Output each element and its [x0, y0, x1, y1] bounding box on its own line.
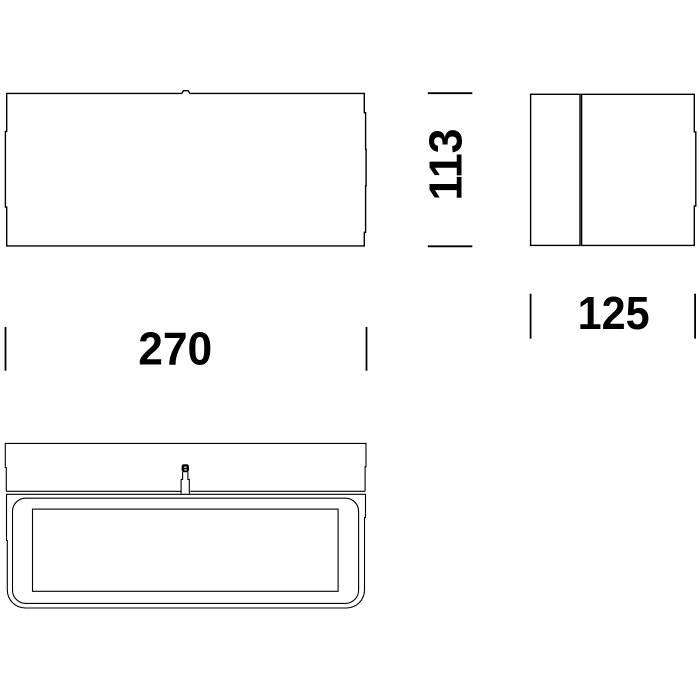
svg-text:113: 113: [420, 129, 472, 201]
svg-text:270: 270: [138, 323, 212, 375]
svg-text:125: 125: [578, 287, 650, 339]
